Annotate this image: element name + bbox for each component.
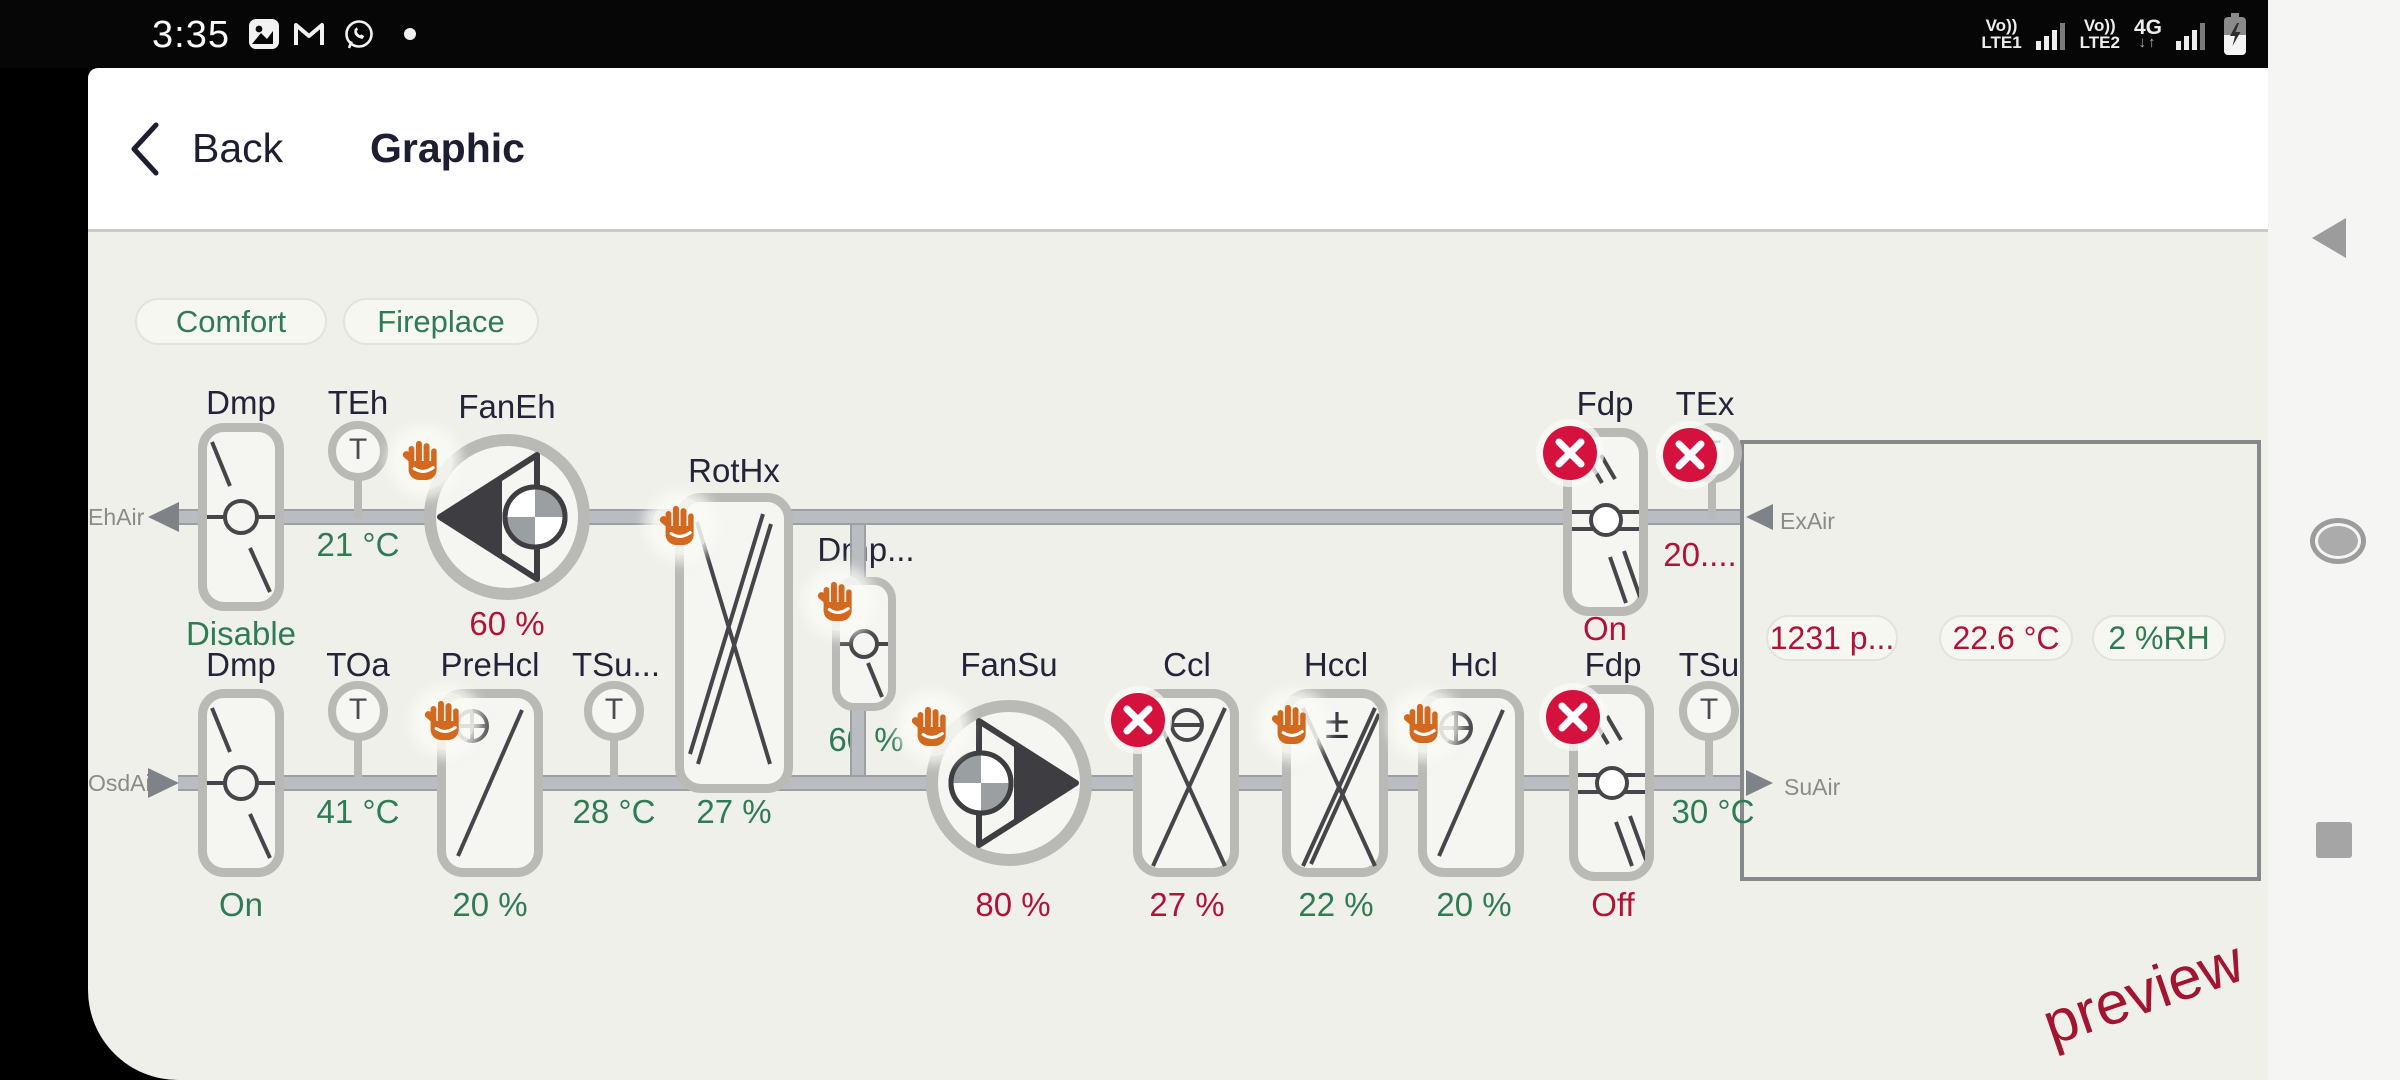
off-alarm-badge-icon <box>1546 690 1600 744</box>
component-label: Dmp <box>206 384 276 422</box>
chevron-left-icon <box>128 121 162 177</box>
component-value: 22 % <box>1298 886 1373 924</box>
off-alarm-badge-icon <box>1543 426 1597 480</box>
nav-home-button[interactable] <box>2310 518 2366 564</box>
status-right-cluster: Vo))LTE1 Vo))LTE2 4G ↓↑ <box>1981 0 2250 68</box>
component-value: 80 % <box>975 886 1050 924</box>
sensor-glyph: T <box>326 419 390 483</box>
nav-back-button[interactable] <box>2312 218 2346 258</box>
suair-label: SuAir <box>1784 774 1840 801</box>
alarm-badge-icon <box>1663 428 1717 482</box>
back-label: Back <box>192 125 283 172</box>
component-label: Ccl <box>1163 646 1211 684</box>
back-button[interactable]: Back <box>128 68 283 229</box>
component-value: 28 °C <box>573 793 656 831</box>
component-value: Off <box>1591 886 1634 924</box>
component-label: FanEh <box>458 388 555 426</box>
sim2-indicator: Vo))LTE2 <box>2080 17 2120 51</box>
exair-label: ExAir <box>1780 508 1835 535</box>
status-bar: 3:35 Vo))LTE1 Vo))LTE2 4G ↓↑ <box>0 0 2268 68</box>
ehair-arrow-icon <box>148 502 179 532</box>
component-value: 60 % <box>469 605 544 643</box>
sensor-toa[interactable]: T <box>326 679 390 743</box>
component-value: 20.... <box>1663 536 1736 574</box>
sensor-glyph: T <box>326 679 390 743</box>
graphic-canvas: Comfort Fireplace EhAir OsdAir ExAir SuA… <box>88 232 2268 1080</box>
component-value: 21 °C <box>317 526 400 564</box>
component-value: On <box>219 886 263 924</box>
component-label: Hccl <box>1304 646 1368 684</box>
manual-override-hand-icon <box>904 698 962 756</box>
component-label: Hcl <box>1450 646 1498 684</box>
gallery-icon <box>248 18 280 55</box>
sensor-teh[interactable]: T <box>326 419 390 483</box>
component-label: Dmp... <box>817 531 914 569</box>
manual-override-hand-icon <box>395 432 453 490</box>
sensor-tsu-ahu[interactable]: T <box>582 679 646 743</box>
component-label: Fdp <box>1577 385 1634 423</box>
component-label: Fdp <box>1585 646 1642 684</box>
component-value: 30 °C <box>1672 793 1755 831</box>
manual-override-hand-icon <box>810 573 868 631</box>
gmail-icon <box>292 18 326 55</box>
sensor-tsu[interactable]: T <box>1677 679 1741 743</box>
component-label: Dmp <box>206 646 276 684</box>
battery-charging-icon <box>2220 11 2250 57</box>
clock: 3:35 <box>152 14 230 57</box>
sensor-glyph: T <box>582 679 646 743</box>
osdair-arrow-icon <box>148 768 179 798</box>
osdair-label: OsdAir <box>88 770 144 797</box>
scene-button-fireplace[interactable]: Fireplace <box>343 298 539 345</box>
room-pressure-chip[interactable]: 1231 p... <box>1766 615 1898 661</box>
app-window: Back Graphic Comfort Fireplace EhAir Osd… <box>88 68 2268 1080</box>
component-label: FanSu <box>960 646 1057 684</box>
whatsapp-icon <box>342 18 376 57</box>
nav-recents-button[interactable] <box>2316 822 2352 858</box>
component-label: TEx <box>1676 385 1735 423</box>
android-nav-bar <box>2268 0 2400 1080</box>
component-value: 60 % <box>828 721 903 759</box>
mobile-data-indicator: 4G ↓↑ <box>2134 19 2162 50</box>
scene-button-comfort[interactable]: Comfort <box>135 298 327 345</box>
manual-override-hand-icon <box>1264 696 1322 754</box>
off-alarm-badge-icon <box>1111 693 1165 747</box>
component-value: 20 % <box>1436 886 1511 924</box>
preview-watermark: preview <box>2009 918 2268 1068</box>
room-temperature-chip[interactable]: 22.6 °C <box>1939 615 2073 661</box>
ehair-label: EhAir <box>88 504 144 531</box>
manual-override-hand-icon <box>417 692 475 750</box>
component-label: PreHcl <box>440 646 539 684</box>
component-value: 27 % <box>1149 886 1224 924</box>
component-label: TEh <box>328 384 389 422</box>
page-title: Graphic <box>370 68 525 229</box>
component-value: 20 % <box>452 886 527 924</box>
svg-text:±: ± <box>1325 699 1349 748</box>
component-value: 41 °C <box>317 793 400 831</box>
signal-bars-icon <box>2036 18 2066 50</box>
exhaust-duct <box>178 509 1740 525</box>
signal-bars-icon <box>2176 18 2206 50</box>
sensor-glyph: T <box>1677 679 1741 743</box>
damper-dmp-outside[interactable] <box>198 689 284 877</box>
sim1-indicator: Vo))LTE1 <box>1981 17 2021 51</box>
exair-arrow-icon <box>1746 504 1773 530</box>
app-header: Back Graphic <box>88 68 2268 232</box>
manual-override-hand-icon <box>652 497 710 555</box>
manual-override-hand-icon <box>1396 695 1454 753</box>
component-label: RotHx <box>688 452 780 490</box>
notification-dot <box>404 28 416 40</box>
damper-dmp-exhaust[interactable] <box>198 423 284 611</box>
room-humidity-chip[interactable]: 2 %RH <box>2092 615 2226 661</box>
component-value: 27 % <box>696 793 771 831</box>
